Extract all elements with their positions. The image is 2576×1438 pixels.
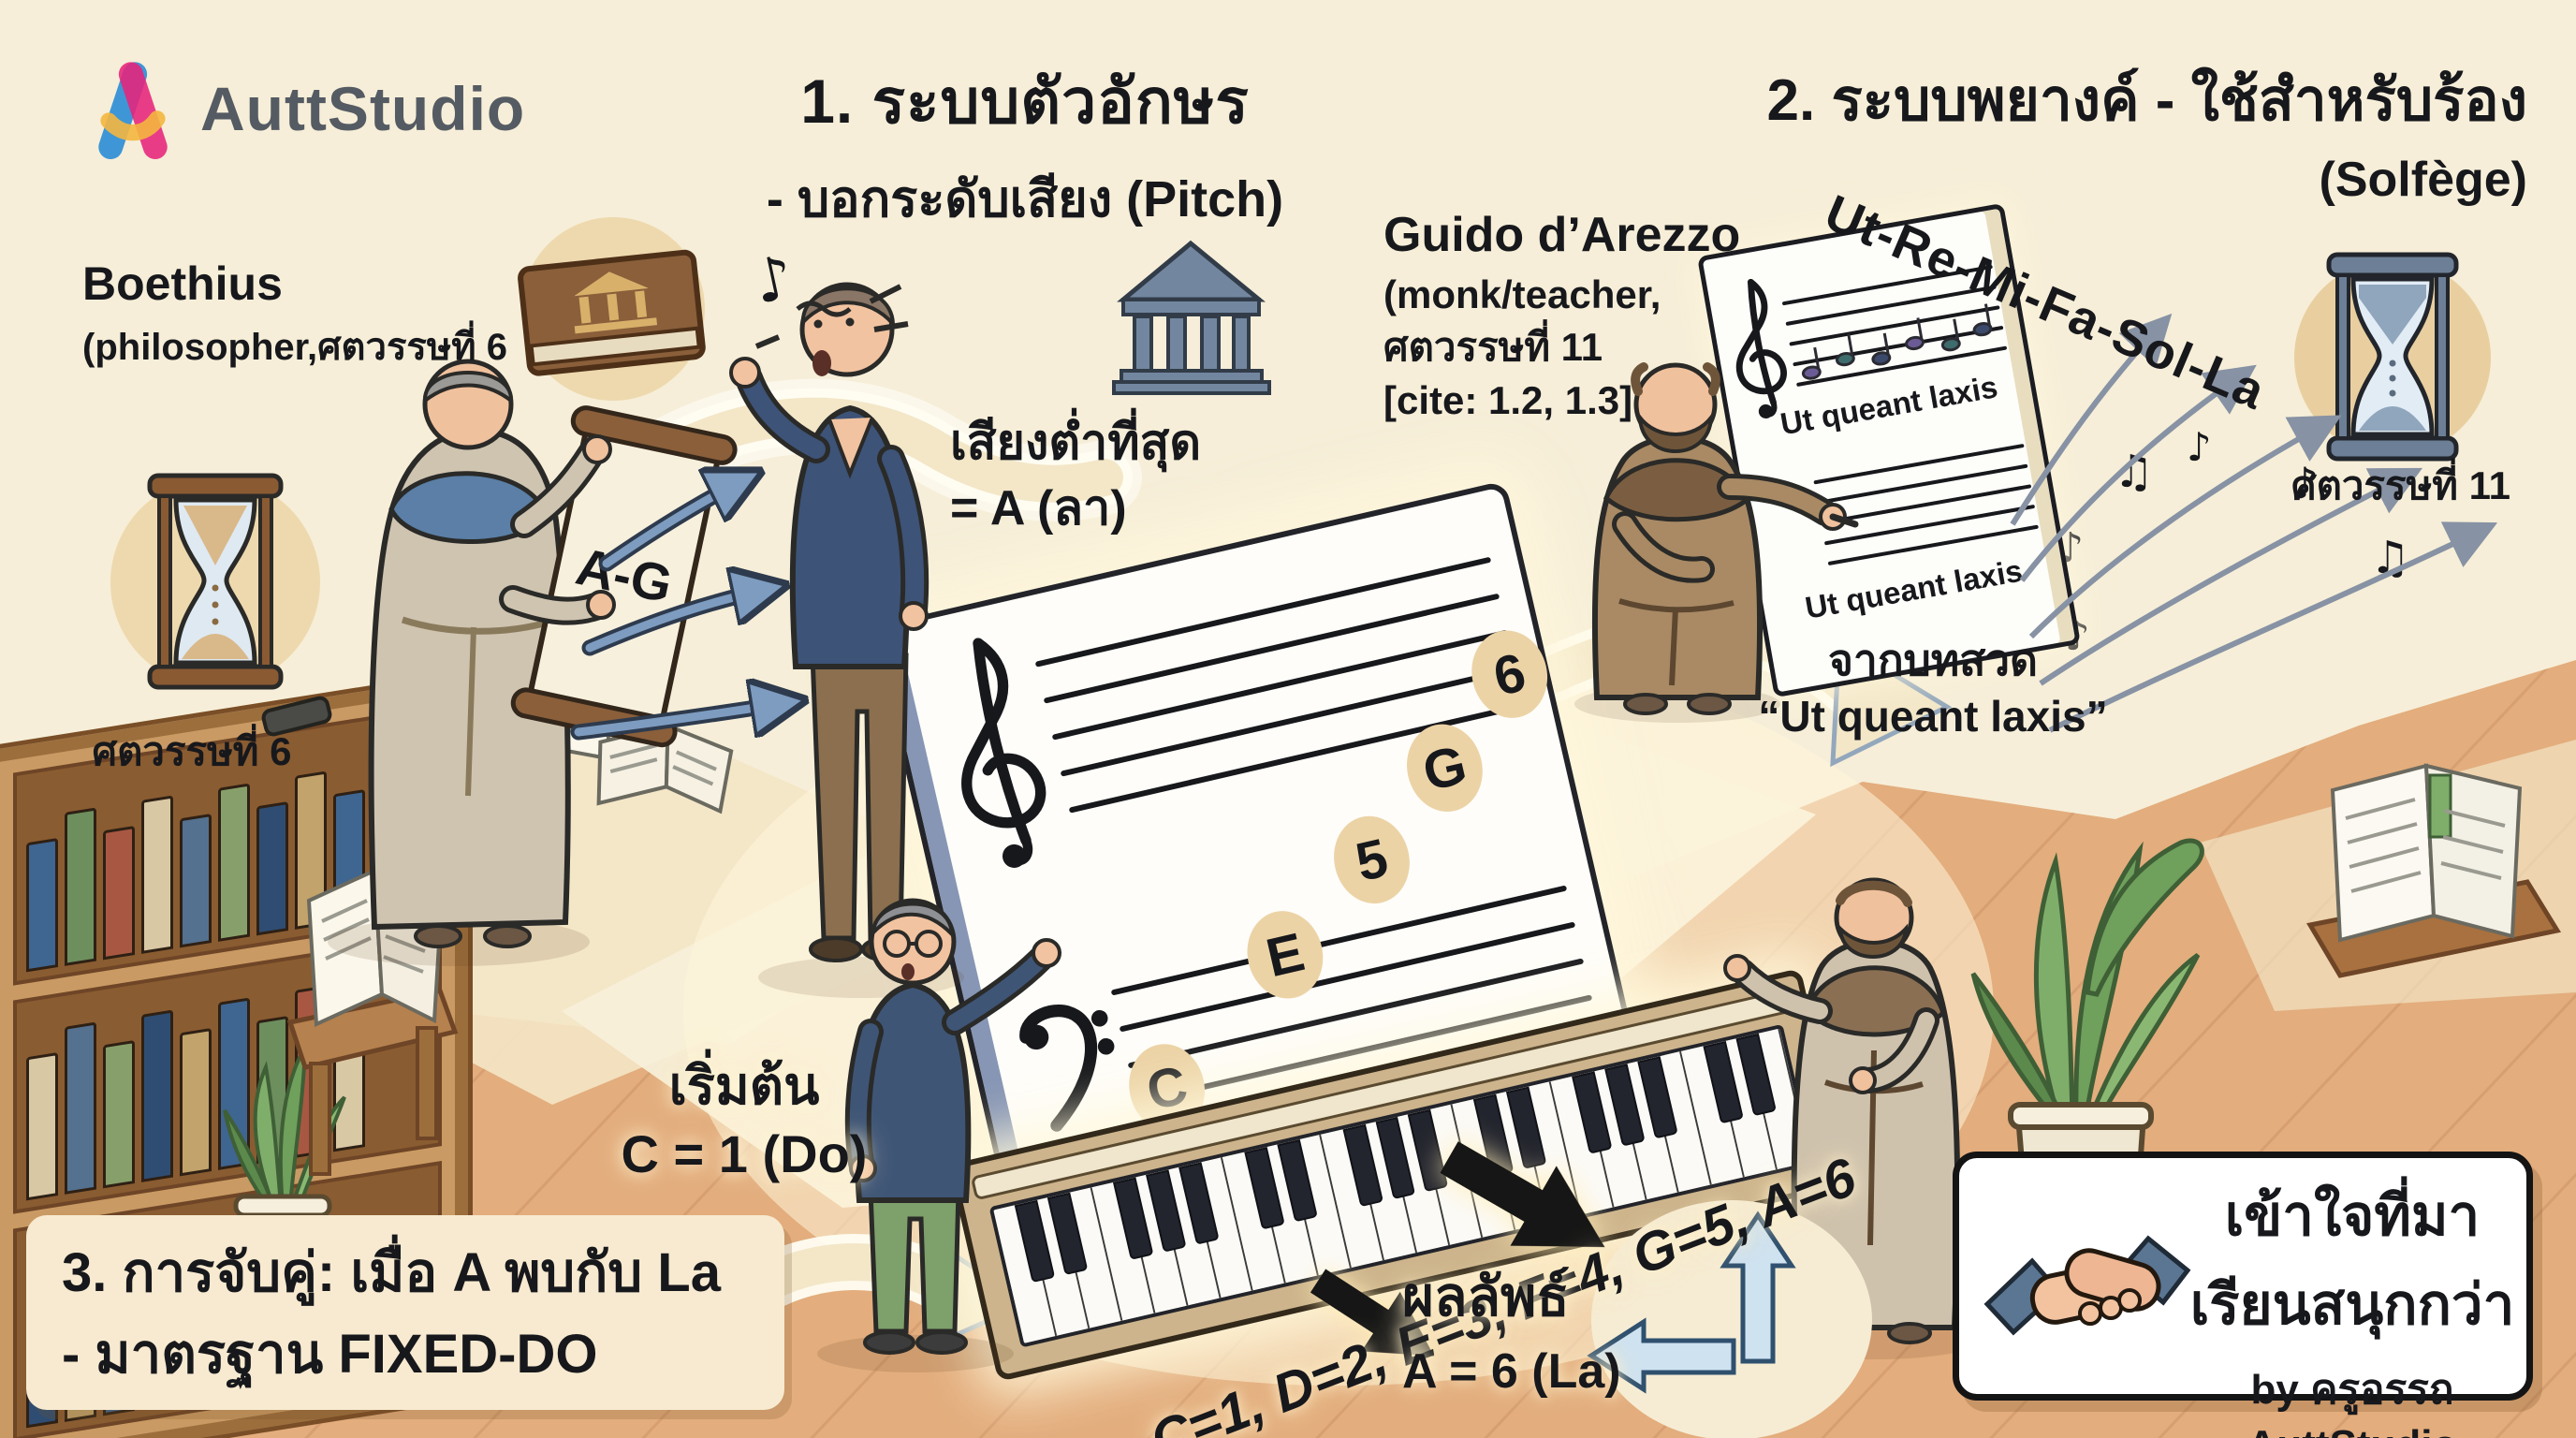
- footer-line3: by ครูอรรถ AuttStudio: [2184, 1357, 2521, 1438]
- chant-line1: จากบทสวด: [1661, 633, 2204, 689]
- century6-caption: ศตวรรษที่ 6: [51, 721, 332, 783]
- staff-line: [1817, 464, 2027, 506]
- treble-clef-icon: [912, 625, 1075, 889]
- handshake-icon: [1980, 1212, 2195, 1362]
- section1-subtitle: - บอกระดับเสียง (Pitch): [721, 158, 1329, 239]
- start-value: C = 1 (Do): [580, 1121, 908, 1189]
- book-spine: [65, 1021, 96, 1194]
- book-spine: [103, 1040, 135, 1188]
- book-spine: [103, 826, 135, 961]
- guido-name: Guido d’Arezzo: [1383, 204, 1740, 268]
- section2-heading: 2. ระบบพยางค์ - ใช้สำหรับร้อง (Solfège): [1582, 54, 2527, 208]
- section3-line2: - มาตรฐาน FIXED-DO: [62, 1313, 749, 1395]
- staff-line: [1821, 484, 2031, 525]
- start-text: เริ่มต้น: [580, 1052, 908, 1121]
- section3-line1: 3. การจับคู่: เมื่อ A พบกับ La: [62, 1232, 749, 1313]
- brand-logo: AuttStudio: [82, 58, 525, 159]
- book-spine: [218, 997, 250, 1169]
- result-value: A = 6 (La): [1402, 1343, 1621, 1400]
- boethius-detail: (philosopher,ศตวรรษที่ 6: [82, 316, 507, 376]
- book-spine: [26, 838, 58, 973]
- book-spine: [180, 814, 212, 948]
- infographic-scene: ♪ ♫ ♪ ♪ ♫ ♪ Ut queant laxis: [0, 0, 2576, 1438]
- staff-line: [1813, 444, 2024, 485]
- footer-badge: เข้าใจที่มา เรียนสนุกกว่า by ครูอรรถ Aut…: [1953, 1152, 2533, 1401]
- staff-line: [1824, 505, 2035, 546]
- svg-text:♪: ♪: [748, 242, 799, 318]
- svg-text:♫: ♫: [2114, 446, 2154, 498]
- svg-text:A-G: A-G: [571, 536, 678, 614]
- book-spine: [26, 1052, 58, 1200]
- temple-icon: [1114, 243, 1269, 393]
- lowest-note-text: เสียงต่ำที่สุด: [950, 410, 1201, 476]
- section2-title: 2. ระบบพยางค์ - ใช้สำหรับร้อง: [1582, 54, 2527, 146]
- guido-century: ศตวรรษที่ 11: [1383, 322, 1740, 374]
- chant-line2: “Ut queant laxis”: [1661, 689, 2204, 745]
- music-stand-right: [2310, 766, 2557, 976]
- boethius-label: Boethius (philosopher,ศตวรรษที่ 6: [82, 257, 507, 376]
- lowest-note-value: = A (ลา): [950, 476, 1201, 541]
- start-label: เริ่มต้น C = 1 (Do): [580, 1052, 908, 1189]
- section1-title: 1. ระบบตัวอักษร: [721, 52, 1329, 151]
- footer-text: เข้าใจที่มา เรียนสนุกกว่า by ครูอรรถ Aut…: [2184, 1171, 2521, 1438]
- result-label: ผลลัพธ์: [1402, 1253, 1621, 1340]
- book-spine: [333, 789, 365, 924]
- lowest-note-label: เสียงต่ำที่สุด = A (ลา): [950, 410, 1201, 541]
- hourglass-icon-century11: [2329, 255, 2456, 459]
- note-label-e: E: [1238, 903, 1331, 1006]
- music-history-book-icon: [520, 252, 704, 374]
- book-spine: [65, 807, 96, 966]
- book-spine: [141, 1009, 173, 1181]
- singing-note-icon: ♪: [748, 242, 908, 346]
- svg-text:♫: ♫: [2370, 532, 2410, 584]
- scroll: A-G: [511, 405, 738, 747]
- guido-role: (monk/teacher,: [1383, 270, 1740, 321]
- section1-heading: 1. ระบบตัวอักษร - บอกระดับเสียง (Pitch): [721, 52, 1329, 239]
- svg-text:♪: ♪: [2187, 424, 2212, 470]
- section2-subtitle: (Solfège): [1582, 152, 2527, 208]
- book-spine: [333, 1004, 365, 1152]
- century11-caption: ศตวรรษที่ 11: [2261, 455, 2541, 517]
- result-label-block: ผลลัพธ์ A = 6 (La): [1402, 1253, 1621, 1400]
- footer-line1: เข้าใจที่มา: [2184, 1171, 2521, 1260]
- guido-cite: [cite: 1.2, 1.3]: [1383, 375, 1740, 427]
- brand-name: AuttStudio: [200, 73, 525, 144]
- hourglass-icon-century6: [150, 476, 281, 687]
- auttstudio-logo-icon: [82, 58, 183, 159]
- guido-label: Guido d’Arezzo (monk/teacher, ศตวรรษที่ …: [1383, 204, 1740, 426]
- book-spine: [180, 1028, 212, 1176]
- book-spine: [218, 783, 250, 942]
- book-spine: [256, 1016, 288, 1164]
- boethius-name: Boethius: [82, 257, 507, 311]
- book-spine: [141, 795, 173, 954]
- note-label-5: 5: [1325, 809, 1418, 912]
- section3-box: 3. การจับคู่: เมื่อ A พบกับ La - มาตรฐาน…: [26, 1215, 784, 1410]
- book-spine: [256, 801, 288, 936]
- book-spine: [295, 770, 327, 930]
- footer-line2: เรียนสนุกกว่า: [2184, 1260, 2521, 1349]
- letter-system-arrows: [578, 477, 792, 732]
- book-spine: [295, 985, 327, 1157]
- chant-caption: จากบทสวด “Ut queant laxis”: [1661, 633, 2204, 745]
